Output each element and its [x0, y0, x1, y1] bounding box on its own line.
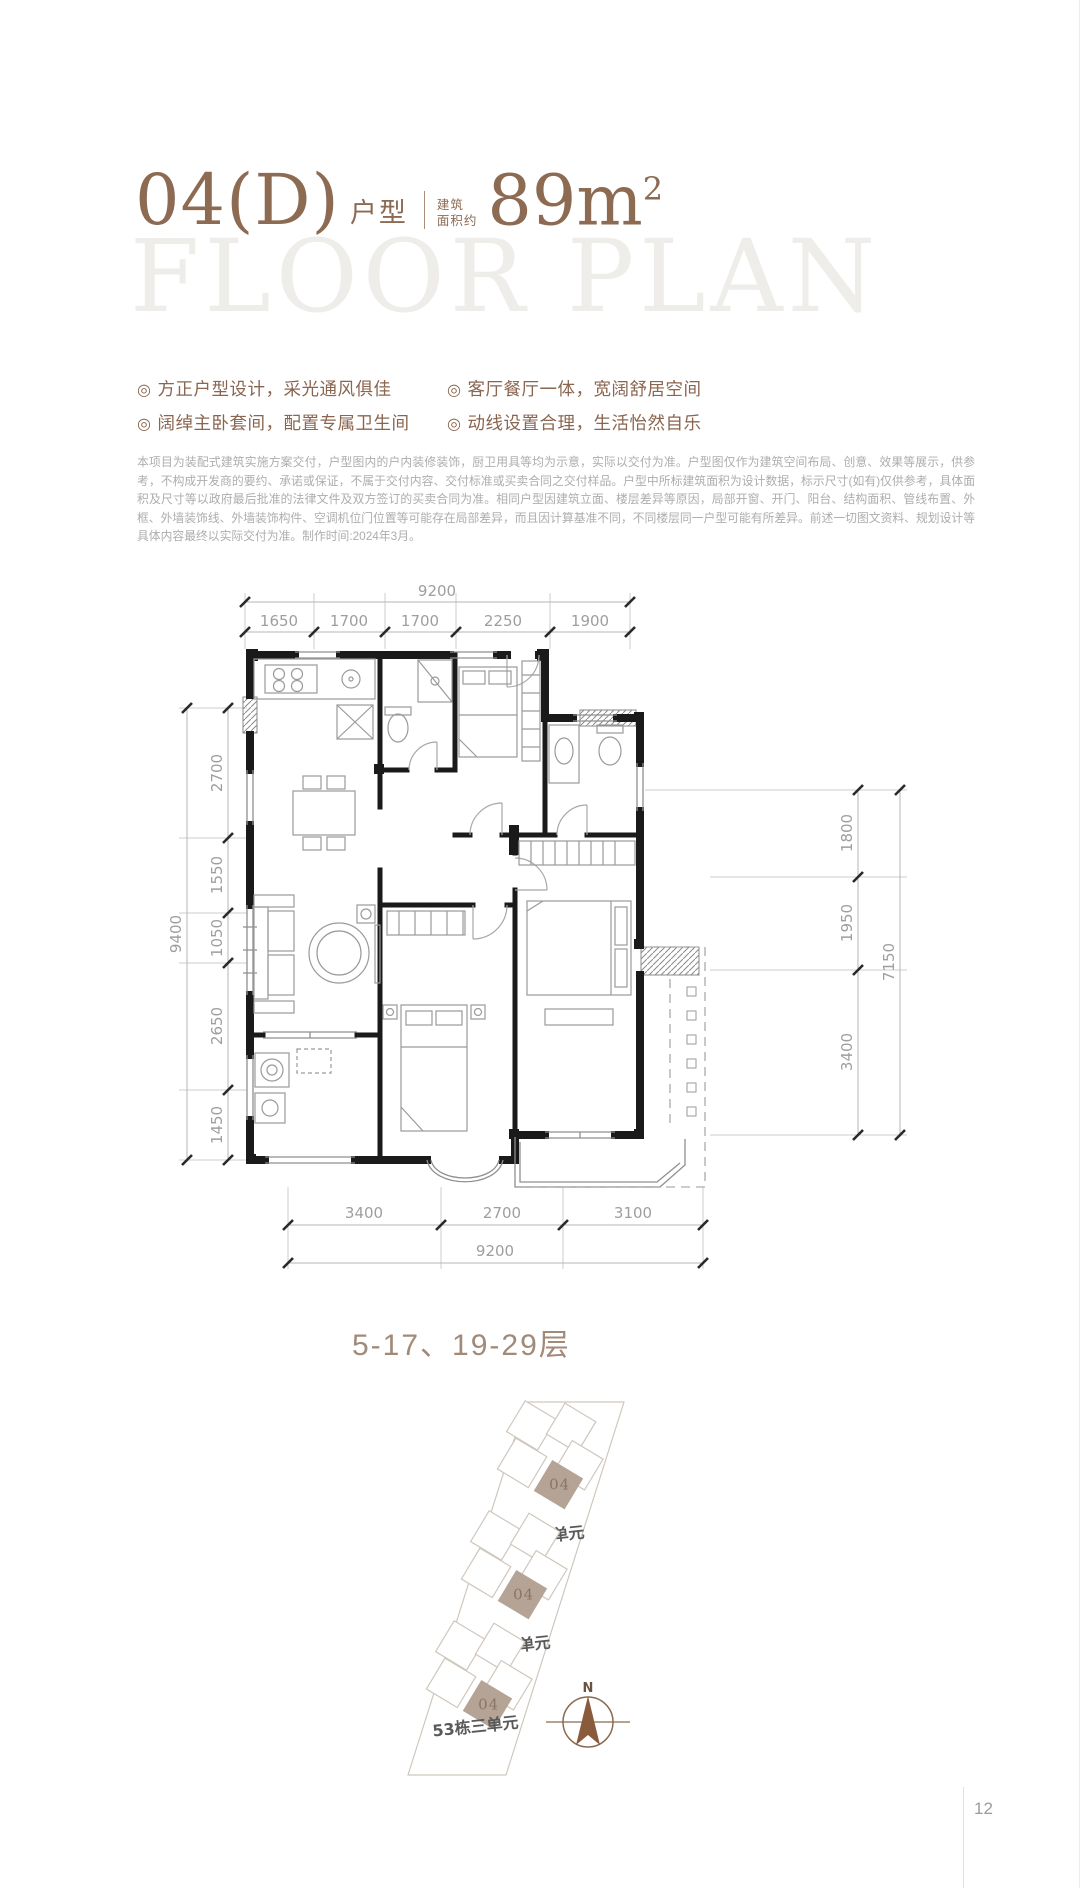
interior-walls [250, 655, 640, 1160]
stove [265, 665, 317, 693]
dimension-labels: 9200 1650 1700 1700 2250 1900 9400 2700 … [167, 582, 898, 1260]
bed [401, 1005, 467, 1131]
sofa [254, 907, 268, 999]
toilet [388, 714, 408, 742]
dimension-label: 1550 [208, 856, 226, 894]
floor-plan-drawing: 9200 1650 1700 1700 2250 1900 9400 2700 … [125, 575, 955, 1301]
north-compass: N [546, 1681, 630, 1747]
bench [545, 1009, 613, 1025]
dimension-label: 2650 [208, 1007, 226, 1045]
disclaimer-text: 本项目为装配式建筑实施方案交付，户型图内的户内装修装饰，厨卫用具等均为示意，实际… [137, 453, 975, 546]
bullet-icon: ◎ [447, 382, 461, 399]
dimension-label: 2700 [483, 1204, 521, 1222]
feature-text: 客厅餐厅一体，宽阔舒居空间 [467, 379, 701, 399]
feature-item: ◎客厅餐厅一体，宽阔舒居空间 [447, 376, 701, 401]
page-number-divider [963, 1787, 964, 1888]
vanity [549, 725, 579, 783]
floor-plan-watermark: FLOOR PLAN [130, 218, 880, 335]
dimension-label: 1900 [571, 612, 609, 630]
feature-text: 动线设置合理，生活怡然自乐 [467, 413, 701, 433]
dimension-label: 9400 [167, 915, 185, 953]
dimension-label: 3400 [838, 1033, 856, 1071]
dimension-label: 1700 [401, 612, 439, 630]
wardrobe [519, 841, 635, 865]
dimension-label: 1050 [208, 919, 226, 957]
dimension-label: 3100 [614, 1204, 652, 1222]
unit-number: 04 [478, 1696, 499, 1714]
dimension-label: 1650 [260, 612, 298, 630]
dining-table [293, 791, 355, 835]
north-arrow-icon [576, 1696, 600, 1745]
windows [243, 652, 685, 1187]
dimension-label: 1800 [838, 814, 856, 852]
unit-number: 04 [549, 1476, 570, 1494]
feature-item: ◎方正户型设计，采光通风俱佳 [137, 376, 391, 401]
bullet-icon: ◎ [137, 416, 151, 433]
washer [255, 1053, 289, 1087]
dimension-label: 1950 [838, 904, 856, 942]
feature-item: ◎阔绰主卧套间，配置专属卫生间 [137, 410, 409, 435]
dimension-label: 3400 [345, 1204, 383, 1222]
bed [459, 667, 517, 757]
door-arcs [409, 655, 587, 939]
feature-item: ◎动线设置合理，生活怡然自乐 [447, 410, 701, 435]
dimension-label: 2250 [484, 612, 522, 630]
site-plan: 04 53栋一单元 04 53栋二单元 04 53 [280, 1400, 800, 1790]
furniture [254, 659, 635, 1131]
dimension-label: 1700 [330, 612, 368, 630]
ac-platform [641, 947, 699, 975]
dimension-label: 7150 [880, 943, 898, 981]
toilet [599, 737, 621, 765]
balcony-outline [515, 1137, 685, 1187]
dimension-label: 2700 [208, 754, 226, 792]
bullet-icon: ◎ [137, 382, 151, 399]
laundry-sink [255, 1093, 285, 1123]
right-dashed-boundary [523, 947, 705, 1187]
feature-text: 阔绰主卧套间，配置专属卫生间 [157, 413, 409, 433]
compass-label: N [583, 1681, 594, 1696]
bay-window [427, 1160, 503, 1182]
dimension-label: 1450 [208, 1106, 226, 1144]
feature-text: 方正户型设计，采光通风俱佳 [157, 379, 391, 399]
unit-number: 04 [513, 1586, 534, 1604]
water-heater [297, 1049, 331, 1073]
brochure-page: 04(D) 户型 建筑 面积约 89m2 FLOOR PLAN ◎方正户型设计，… [0, 0, 1080, 1888]
floors-label: 5-17、19-29层 [352, 1320, 571, 1364]
bullet-icon: ◎ [447, 416, 461, 433]
page-number: 12 [974, 1799, 993, 1819]
kitchen-sink [342, 670, 360, 688]
dimension-label: 9200 [418, 582, 456, 600]
dimension-label: 9200 [476, 1242, 514, 1260]
rug [309, 923, 369, 983]
